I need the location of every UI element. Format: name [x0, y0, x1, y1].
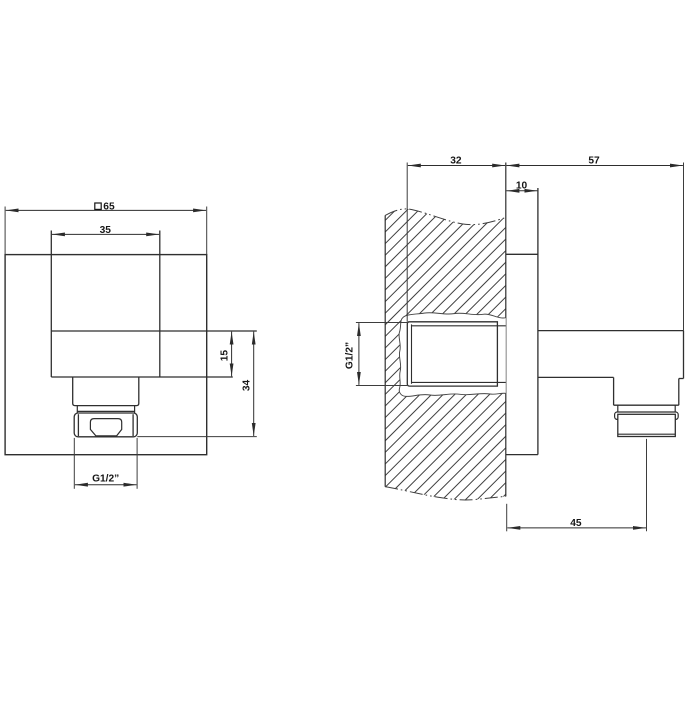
svg-text:G1/2”: G1/2”	[92, 474, 119, 485]
svg-text:34: 34	[242, 380, 253, 392]
svg-text:G1/2”: G1/2”	[344, 342, 355, 369]
svg-text:65: 65	[103, 201, 115, 212]
svg-text:45: 45	[570, 518, 582, 529]
svg-text:57: 57	[588, 155, 600, 166]
svg-text:35: 35	[100, 225, 112, 236]
svg-text:32: 32	[450, 155, 462, 166]
svg-text:15: 15	[219, 350, 230, 362]
svg-text:10: 10	[516, 180, 528, 191]
